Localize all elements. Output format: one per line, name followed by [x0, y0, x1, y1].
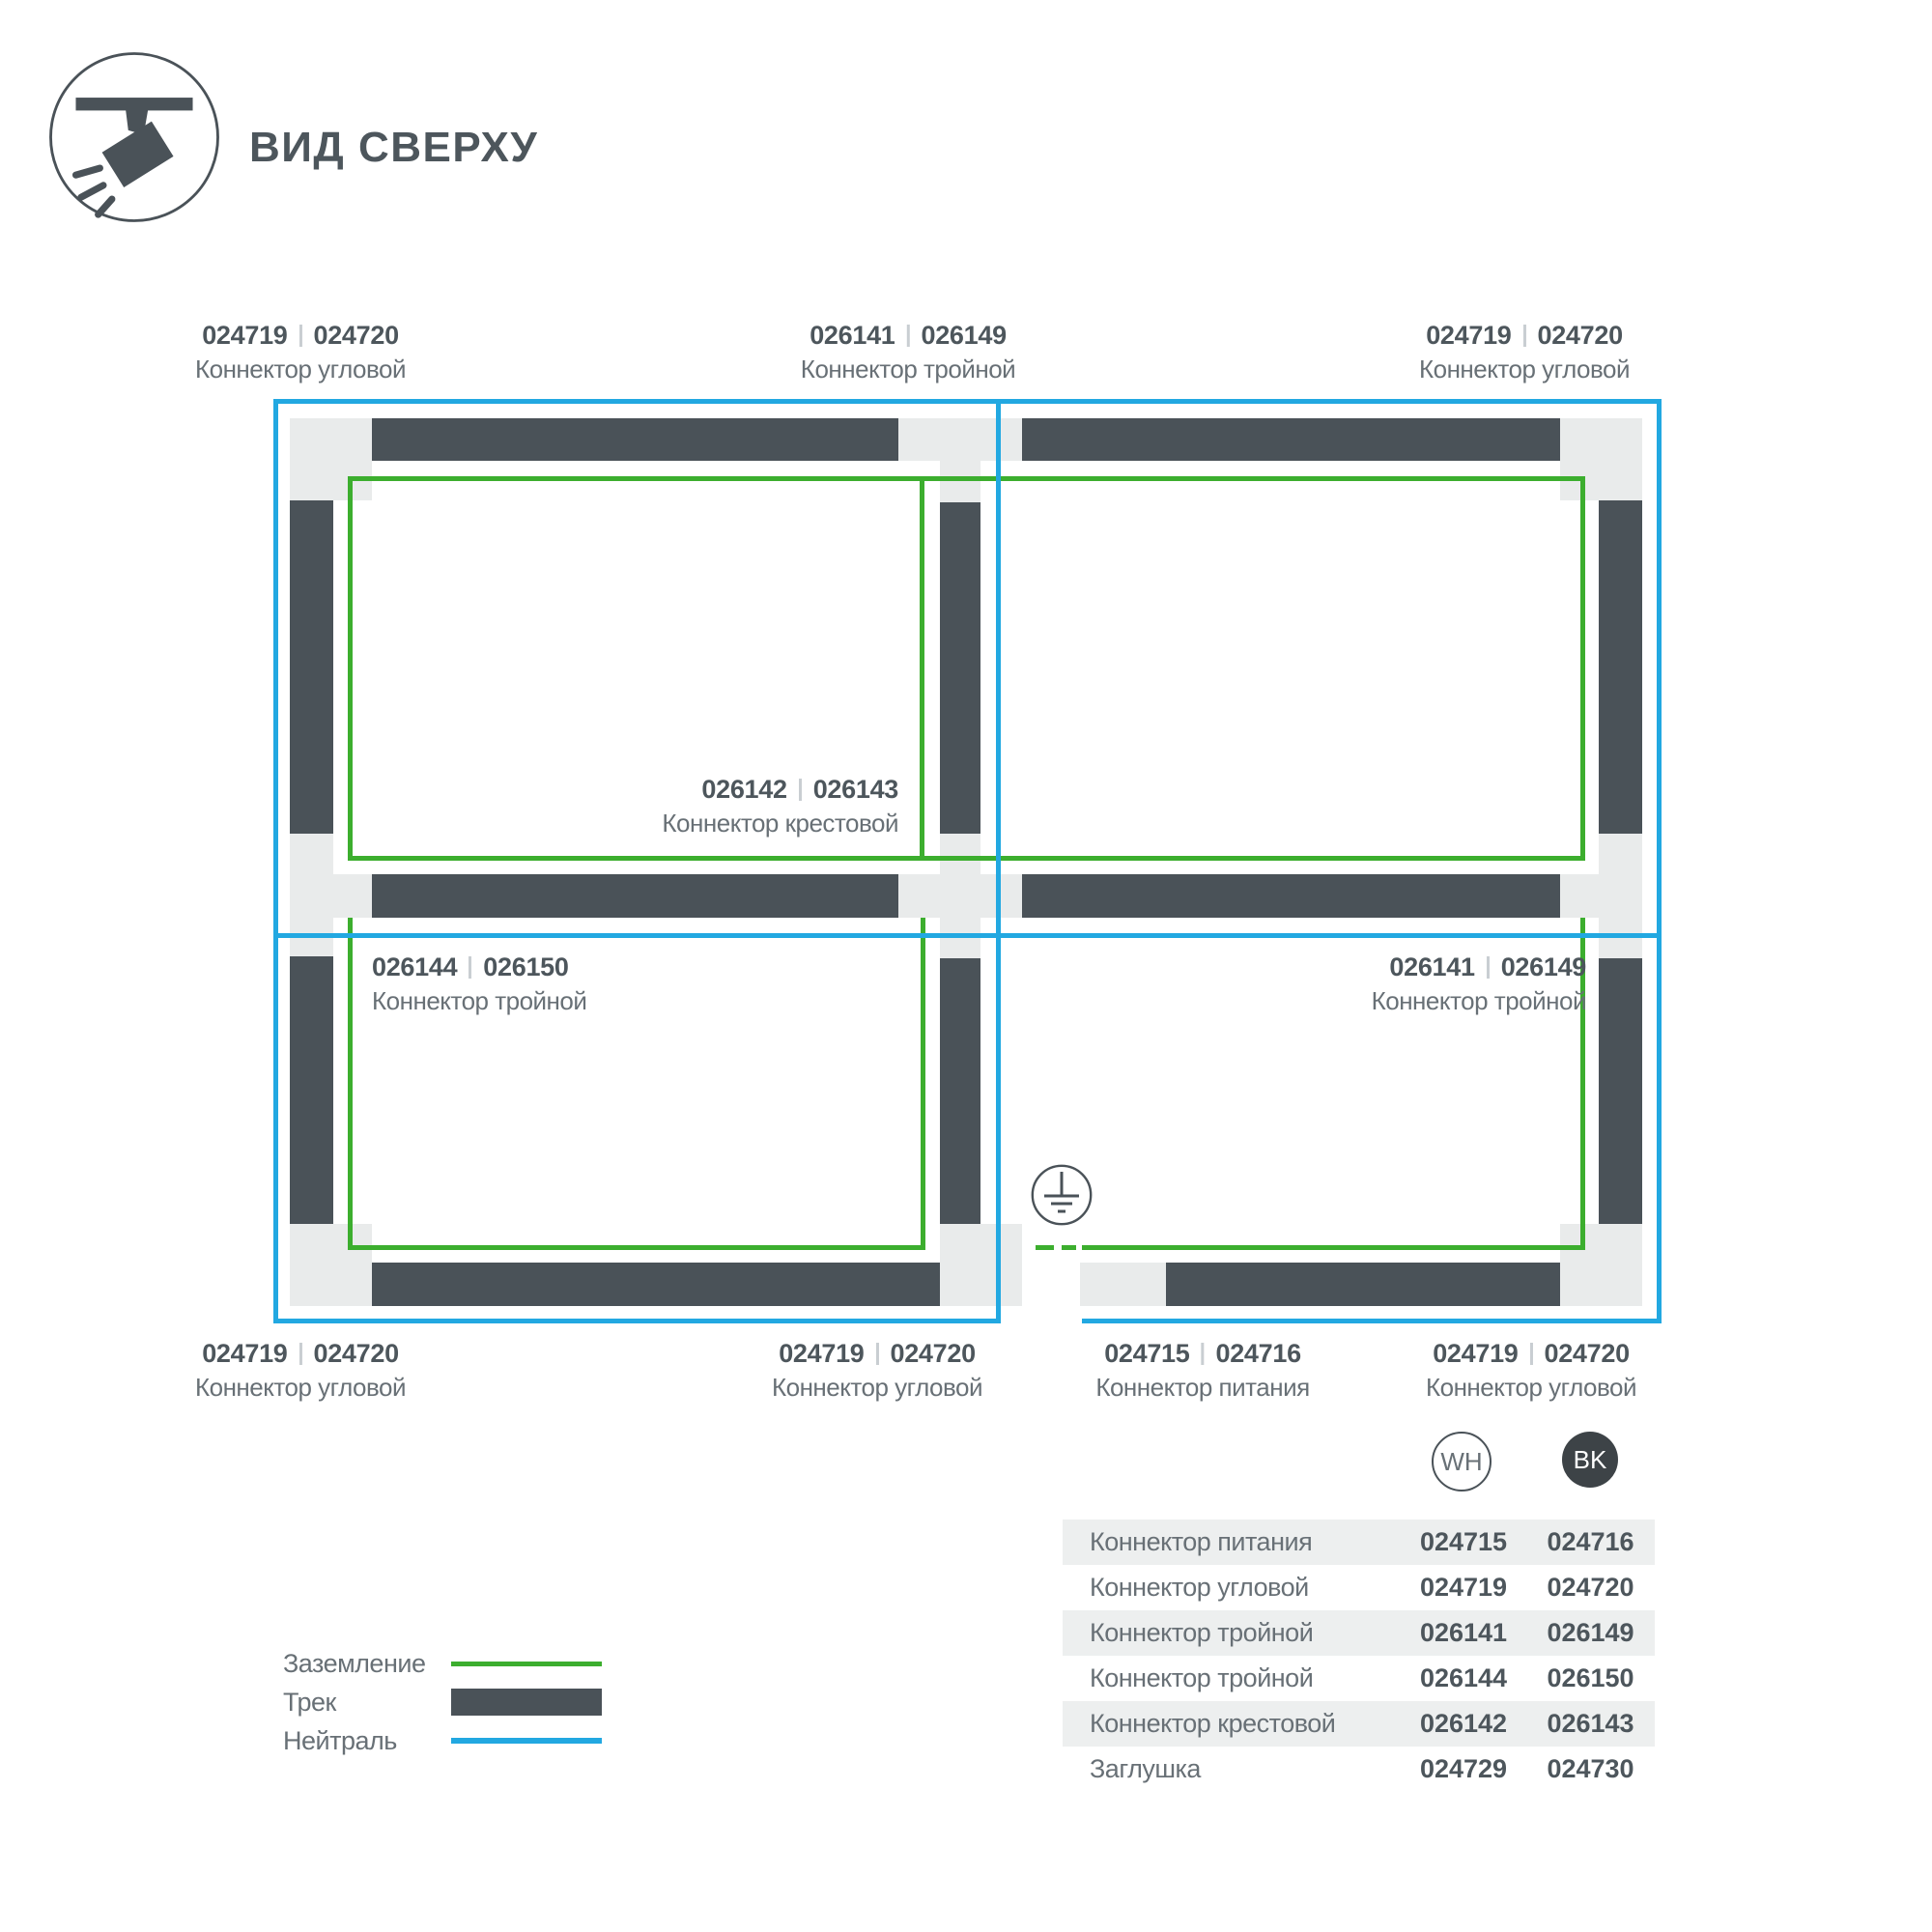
callout-label: 026141026149 Коннектор тройной — [1372, 954, 1586, 1013]
neutral-line — [273, 399, 1662, 404]
row-code-wh: 026142 — [1401, 1709, 1526, 1739]
tee-connector — [1560, 874, 1599, 918]
ground-line — [921, 918, 925, 1245]
ground-line — [348, 1245, 925, 1250]
corner-connector — [290, 418, 372, 500]
divider — [1523, 325, 1526, 347]
track-segment — [290, 500, 333, 834]
callout-label: 024719024720 Коннектор угловой — [1426, 1341, 1636, 1400]
code-bk: 024720 — [314, 321, 399, 350]
divider — [1201, 1343, 1204, 1365]
ground-line — [348, 918, 353, 1245]
row-code-wh: 026141 — [1401, 1618, 1526, 1648]
legend-item-track: Трек — [283, 1683, 602, 1721]
divider — [799, 779, 802, 801]
ground-line — [348, 481, 353, 856]
callout-name: Коннектор крестовой — [662, 810, 898, 836]
track-light-icon — [48, 51, 220, 223]
callout-name: Коннектор питания — [1095, 1375, 1309, 1400]
callout-name: Коннектор тройной — [372, 988, 586, 1013]
callout-name: Коннектор тройной — [801, 356, 1015, 382]
code-bk: 026149 — [922, 321, 1007, 350]
code-wh: 026141 — [1389, 952, 1474, 981]
callout-label: 024719024720 Коннектор угловой — [195, 323, 406, 382]
row-name: Коннектор тройной — [1063, 1618, 1401, 1648]
page: ВИД СВЕРХУ — [0, 0, 1932, 1932]
row-code-bk: 026149 — [1526, 1618, 1655, 1648]
legend-item-ground: Заземление — [283, 1644, 602, 1683]
callout-label: 024719024720 Коннектор угловой — [1419, 323, 1630, 382]
divider — [1530, 1343, 1533, 1365]
callout-name: Коннектор угловой — [195, 1375, 406, 1400]
table-row: Заглушка 024729 024730 — [1063, 1747, 1655, 1792]
tee-connector — [898, 418, 1022, 461]
table-row: Коннектор питания 024715 024716 — [1063, 1520, 1655, 1565]
corner-connector — [290, 1224, 372, 1306]
track-segment — [940, 502, 980, 834]
divider — [299, 1343, 302, 1365]
row-name: Коннектор питания — [1063, 1527, 1401, 1557]
row-code-wh: 024719 — [1401, 1573, 1526, 1603]
ground-line — [920, 481, 924, 856]
code-wh: 024719 — [1433, 1339, 1518, 1368]
code-bk: 024720 — [1545, 1339, 1630, 1368]
code-wh: 026142 — [701, 775, 786, 804]
track-segment — [1599, 500, 1642, 834]
ground-line-swatch — [451, 1662, 602, 1666]
row-code-wh: 024729 — [1401, 1754, 1526, 1784]
callout-label: 026144026150 Коннектор тройной — [372, 954, 586, 1013]
callout-name: Коннектор угловой — [195, 356, 406, 382]
page-title: ВИД СВЕРХУ — [249, 124, 538, 172]
ground-line-dash — [1062, 1245, 1076, 1250]
callout-label: 024719024720 Коннектор угловой — [195, 1341, 406, 1400]
track-segment — [372, 418, 898, 461]
callout-label: 026141026149 Коннектор тройной — [801, 323, 1015, 382]
neutral-line — [273, 1319, 1001, 1323]
row-name: Коннектор тройной — [1063, 1663, 1401, 1693]
tee-connector — [333, 874, 372, 918]
divider — [907, 325, 910, 347]
code-bk: 026150 — [483, 952, 568, 981]
row-code-bk: 026150 — [1526, 1663, 1655, 1693]
ground-line — [348, 476, 1585, 481]
code-wh: 024715 — [1104, 1339, 1189, 1368]
row-name: Коннектор угловой — [1063, 1573, 1401, 1603]
track-segment — [1166, 1263, 1560, 1306]
code-bk: 024720 — [314, 1339, 399, 1368]
table-row: Коннектор тройной 026144 026150 — [1063, 1656, 1655, 1701]
code-bk: 024720 — [891, 1339, 976, 1368]
neutral-line — [1082, 1319, 1662, 1323]
code-bk: 026149 — [1501, 952, 1586, 981]
callout-label: 026142026143 Коннектор крестовой — [662, 777, 898, 836]
row-name: Коннектор крестовой — [1063, 1709, 1401, 1739]
cross-connector — [940, 834, 980, 958]
callout-label: 024719024720 Коннектор угловой — [772, 1341, 982, 1400]
ground-line — [348, 856, 1585, 861]
row-code-wh: 026144 — [1401, 1663, 1526, 1693]
ground-line-dash — [1036, 1245, 1054, 1250]
legend-label: Трек — [283, 1688, 451, 1718]
track-segment — [290, 956, 333, 1224]
corner-connector — [1560, 418, 1642, 500]
track-segment — [940, 958, 980, 1224]
code-wh: 026141 — [810, 321, 895, 350]
code-bk: 024720 — [1538, 321, 1623, 350]
tee-connector — [940, 461, 980, 502]
row-code-bk: 024730 — [1526, 1754, 1655, 1784]
callout-name: Коннектор тройной — [1372, 988, 1586, 1013]
row-name: Заглушка — [1063, 1754, 1401, 1784]
track-bar-swatch — [451, 1689, 602, 1716]
legend-label: Заземление — [283, 1649, 451, 1679]
earth-ground-icon — [1030, 1163, 1094, 1227]
divider — [1487, 956, 1490, 979]
callout-name: Коннектор угловой — [772, 1375, 982, 1400]
code-wh: 024719 — [1426, 321, 1511, 350]
legend-label: Нейтраль — [283, 1726, 451, 1756]
code-wh: 026144 — [372, 952, 457, 981]
neutral-line — [273, 399, 278, 1323]
power-connector — [1080, 1263, 1166, 1306]
color-badge-wh: WH — [1432, 1432, 1492, 1492]
callout-name: Коннектор угловой — [1426, 1375, 1636, 1400]
track-segment — [1599, 958, 1642, 1224]
neutral-line — [996, 399, 1001, 1323]
code-wh: 024719 — [202, 1339, 287, 1368]
track-segment — [372, 874, 898, 918]
tee-connector — [1599, 834, 1642, 958]
table-row: Коннектор угловой 024719 024720 — [1063, 1565, 1655, 1610]
table-row: Коннектор тройной 026141 026149 — [1063, 1610, 1655, 1656]
neutral-line — [273, 933, 1662, 938]
code-bk: 026143 — [813, 775, 898, 804]
code-bk: 024716 — [1215, 1339, 1300, 1368]
corner-connector — [940, 1224, 1022, 1306]
code-wh: 024719 — [202, 321, 287, 350]
row-code-bk: 024716 — [1526, 1527, 1655, 1557]
divider — [469, 956, 471, 979]
ground-line — [1082, 1245, 1585, 1250]
ground-line — [1580, 481, 1585, 856]
table-row: Коннектор крестовой 026142 026143 — [1063, 1701, 1655, 1747]
row-code-wh: 024715 — [1401, 1527, 1526, 1557]
row-code-bk: 026143 — [1526, 1709, 1655, 1739]
neutral-line — [1657, 399, 1662, 1323]
divider — [299, 325, 302, 347]
legend-item-neutral: Нейтраль — [283, 1721, 602, 1760]
legend: Заземление Трек Нейтраль — [283, 1644, 602, 1760]
callout-label: 024715024716 Коннектор питания — [1095, 1341, 1309, 1400]
track-segment — [1022, 418, 1560, 461]
neutral-line-swatch — [451, 1738, 602, 1744]
divider — [876, 1343, 879, 1365]
code-wh: 024719 — [779, 1339, 864, 1368]
track-segment — [372, 1263, 940, 1306]
corner-connector — [1560, 1224, 1642, 1306]
track-segment — [1022, 874, 1560, 918]
row-code-bk: 024720 — [1526, 1573, 1655, 1603]
callout-name: Коннектор угловой — [1419, 356, 1630, 382]
color-badge-bk: BK — [1562, 1432, 1618, 1488]
